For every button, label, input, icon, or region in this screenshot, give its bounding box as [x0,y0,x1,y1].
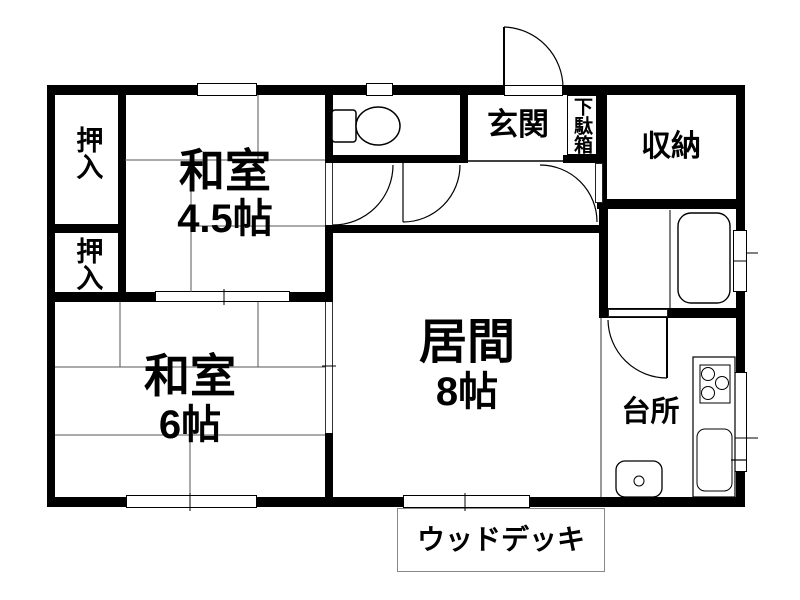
bathtub-icon [670,210,730,308]
ima-size-label: 8帖 [333,371,601,413]
toilet-door [403,163,460,222]
linework-layer [0,0,800,600]
floor-plan: ウッドデッキ [0,0,800,600]
ima-label: 居間 [333,318,601,368]
kitchen-counter-icon [693,357,746,497]
washbasin-icon [616,461,662,497]
washitsu45-label: 和室 [125,147,325,195]
genkan-label: 玄関 [468,109,568,142]
shunou-label: 収納 [607,131,735,163]
oshiire-upper-label: 押入 [73,126,101,180]
washroom-door-arc [540,165,597,222]
bathroom-kitchen-door [608,318,667,378]
entrance-door [504,27,563,88]
corridor-west-door-arc [333,165,393,225]
washitsu45-size-label: 4.5帖 [125,198,325,240]
toilet-icon [332,107,400,145]
washitsu6-size-label: 6帖 [55,404,325,446]
getabako-label: 下駄箱 [571,97,591,154]
washitsu6-label: 和室 [55,352,325,400]
daidokoro-label: 台所 [608,397,693,427]
stove-icon [700,365,730,403]
oshiire-lower-label: 押入 [73,237,101,291]
